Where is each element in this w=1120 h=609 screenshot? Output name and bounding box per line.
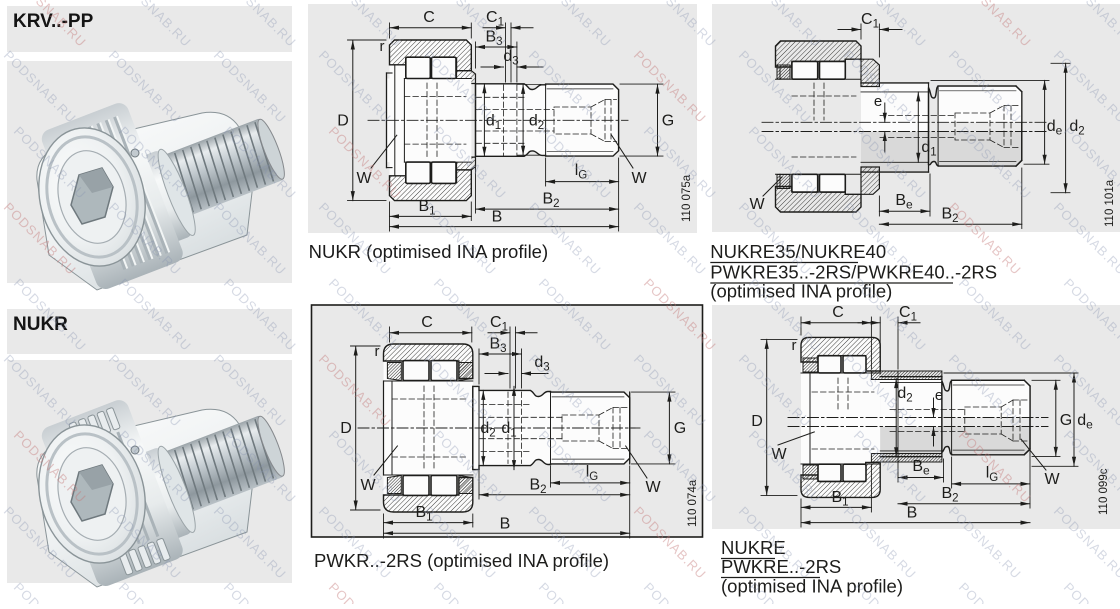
svg-text:W: W [631,170,647,187]
svg-text:e: e [935,387,943,404]
svg-text:B: B [492,209,503,226]
svg-text:B: B [907,505,918,522]
svg-text:r: r [380,38,385,55]
svg-text:r: r [375,343,380,360]
svg-text:W: W [645,479,661,496]
svg-text:B: B [500,516,511,533]
svg-text:G: G [662,113,674,130]
svg-text:W: W [1044,471,1060,488]
svg-text:C: C [421,314,433,331]
svg-text:C: C [423,9,435,26]
svg-text:C: C [832,304,844,321]
svg-text:NUKR (optimised INA profile): NUKR (optimised INA profile) [309,241,549,262]
svg-text:G: G [1060,412,1072,429]
svg-text:G: G [674,420,686,437]
svg-text:r: r [792,337,797,354]
